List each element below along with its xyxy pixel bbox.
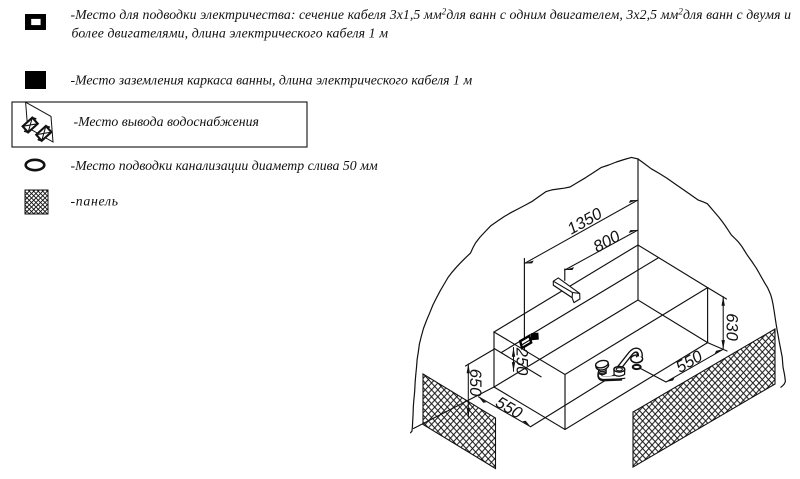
svg-text:более двигателями, длина элект: более двигателями, длина электрического …	[72, 26, 389, 41]
svg-text:650: 650	[466, 369, 484, 397]
svg-text:630: 630	[723, 313, 741, 341]
svg-text:550: 550	[492, 393, 526, 423]
svg-text:-панель: -панель	[71, 194, 119, 209]
svg-text:800: 800	[590, 227, 624, 256]
svg-text:-Место для подводки электричес: -Место для подводки электричества: сечен…	[71, 6, 792, 22]
svg-text:-Место подводки канализации ди: -Место подводки канализации диаметр слив…	[71, 158, 378, 173]
svg-text:-Место заземления каркаса ванн: -Место заземления каркаса ванны, длина э…	[71, 73, 473, 88]
svg-text:-Место вывода водоснабжения: -Место вывода водоснабжения	[74, 114, 259, 129]
svg-text:1350: 1350	[564, 204, 606, 238]
svg-text:250: 250	[513, 347, 531, 376]
